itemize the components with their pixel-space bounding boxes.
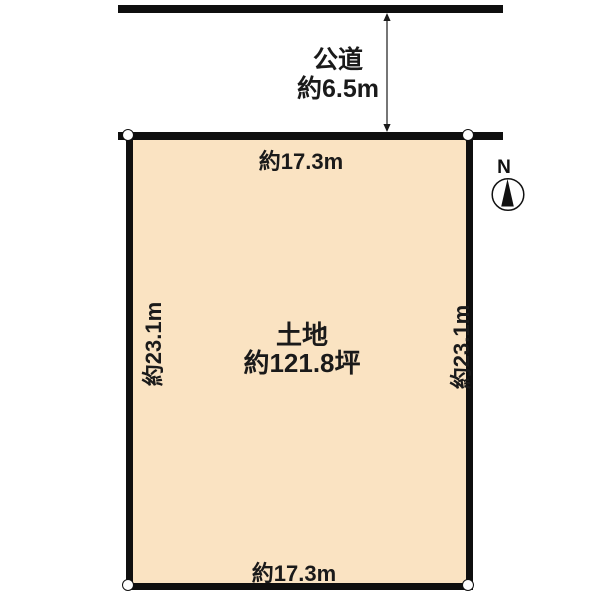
corner-marker-top-left — [122, 129, 134, 141]
plot-area-label: 約121.8坪 — [202, 349, 402, 377]
road-width-arrow — [381, 13, 393, 132]
north-label: N — [491, 157, 517, 179]
bottom-width-label: 約17.3m — [224, 556, 364, 588]
arrowhead-up-icon — [383, 13, 390, 21]
left-depth-label: 約23.1m — [136, 294, 160, 394]
corner-marker-bottom-right — [462, 579, 474, 591]
right-depth-label: 約23.1m — [444, 297, 468, 397]
plot-title: 土地 — [202, 321, 402, 349]
plot-top-boundary-line — [118, 132, 503, 140]
top-width-label: 約17.3m — [231, 144, 371, 176]
arrowhead-down-icon — [383, 124, 390, 132]
plot-center-text: 土地 約121.8坪 — [202, 321, 402, 377]
corner-marker-bottom-left — [122, 579, 134, 591]
compass-icon — [490, 177, 526, 213]
land-plot-diagram: 公道 約6.5m N 約17.3m 約17.3m 約23.1m 約23.1m 土… — [0, 0, 600, 600]
corner-marker-top-right — [462, 129, 474, 141]
road-boundary-line — [118, 5, 503, 13]
